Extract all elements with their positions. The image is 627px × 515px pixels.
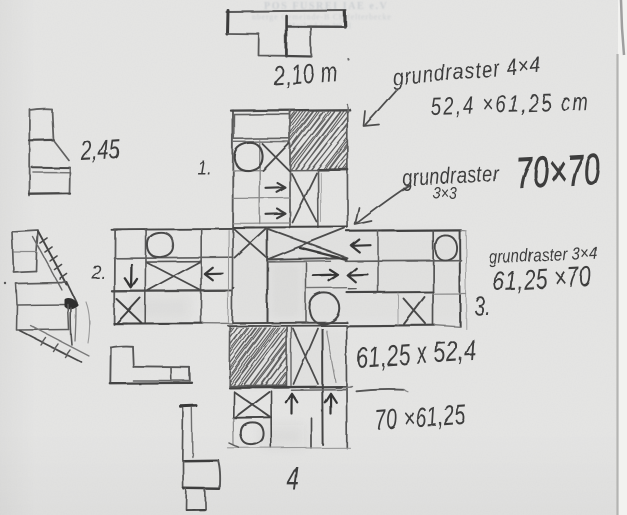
svg-text:2,45: 2,45 — [79, 134, 121, 167]
svg-text:1.: 1. — [197, 156, 211, 178]
svg-text:70 ×61,25: 70 ×61,25 — [374, 399, 467, 437]
svg-text:61,25 ×70: 61,25 ×70 — [492, 261, 593, 298]
svg-text:nberge Gemeinde-B Ch-felterbec: nberge Gemeinde-B Ch-felterbecke — [252, 13, 392, 22]
svg-text:4: 4 — [287, 461, 299, 497]
svg-text:3.: 3. — [474, 291, 491, 320]
svg-text:2.: 2. — [91, 261, 106, 283]
svg-text:70×70: 70×70 — [515, 145, 601, 198]
svg-text:2,10 m: 2,10 m — [271, 57, 338, 92]
svg-text:52,4 ×61,25 cm: 52,4 ×61,25 cm — [430, 87, 590, 121]
svg-text:3×3: 3×3 — [433, 185, 457, 204]
